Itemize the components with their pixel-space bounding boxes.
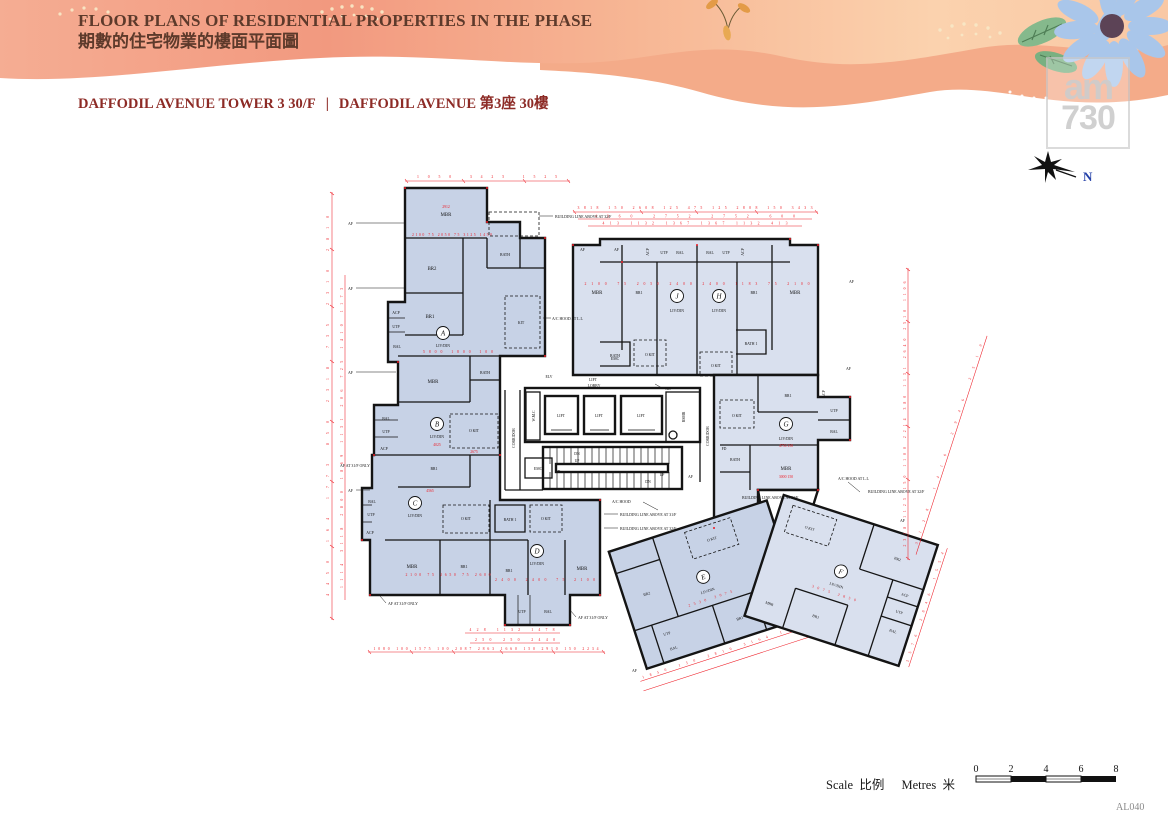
af-label-1: AF bbox=[348, 222, 354, 226]
room-label-okit: O KIT bbox=[711, 364, 722, 368]
af-label-7: AF bbox=[849, 280, 855, 284]
unit-letter-h: H bbox=[715, 293, 722, 301]
corridor-label-left: CORRIDOR bbox=[512, 428, 516, 448]
room-label-mbr: MBR bbox=[407, 565, 418, 570]
room-label-livdin: LIV/DIN bbox=[779, 437, 793, 441]
lift-label-1: LIFT bbox=[557, 414, 566, 418]
ann-af31-c: AF AT 31/F ONLY bbox=[388, 602, 418, 606]
ann-building-line-32-a: BUILDING LINE ABOVE AT 32/F bbox=[555, 215, 612, 219]
af-label-10: AF bbox=[900, 519, 906, 523]
up-label-2: UP bbox=[660, 473, 665, 477]
emc-label: EMC bbox=[534, 467, 543, 471]
subtitle-tower: DAFFODIL AVENUE TOWER 3 30/F bbox=[78, 96, 316, 112]
af-label-2: AF bbox=[348, 287, 354, 291]
dn-label-2: DN bbox=[645, 480, 651, 484]
scale-tick-6: 6 bbox=[1079, 764, 1084, 775]
dim-bottom-3: 1080 100 1575 100 2087 2863 1660 150 291… bbox=[374, 647, 599, 651]
room-label-br1: BR1 bbox=[636, 291, 643, 295]
metres-label-zh: 米 bbox=[942, 778, 955, 792]
ann-ac-hood-e: A/C HOOD bbox=[612, 500, 631, 504]
title-block: FLOOR PLANS OF RESIDENTIAL PROPERTIES IN… bbox=[78, 10, 592, 53]
room-label-livdin: LIV/DIN bbox=[408, 514, 422, 518]
dim-a-mbr: 2912 bbox=[442, 205, 450, 209]
room-label-bath: BATH bbox=[500, 253, 510, 257]
dim-bottom-2: 250 250 2440 bbox=[475, 638, 555, 642]
room-label-utp: UTP bbox=[382, 430, 389, 434]
af-label-4: AF bbox=[348, 489, 354, 493]
dim-a-beds: 2100 75 2050 75 3125 1450 bbox=[412, 233, 492, 237]
dim-right-1: 2318 1123 150 1100 2214 380 1131 2640 25… bbox=[903, 281, 907, 546]
room-label-livdin: LIV/DIN bbox=[712, 309, 726, 313]
wing-unit-f: O KIT BR2 F LIV/DIN 3075 2850 BR1 MBR AC… bbox=[745, 495, 948, 669]
room-label-kit: KIT bbox=[518, 321, 525, 325]
ann-af31-b: AF AT 31/F ONLY bbox=[340, 464, 370, 468]
scale-tick-2: 2 bbox=[1009, 764, 1014, 775]
lift-label-3: LIFT bbox=[637, 414, 646, 418]
scale-label-en: Scale bbox=[826, 778, 853, 792]
unit-letter-g: G bbox=[783, 421, 788, 429]
dim-jh-row1: 3818 150 2608 125 475 125 2808 150 3433 bbox=[578, 206, 813, 210]
metres-label-en: Metres bbox=[901, 778, 936, 792]
af-label-8: AF bbox=[846, 367, 852, 371]
scale-tick-4: 4 bbox=[1044, 764, 1049, 775]
room-label-bal: BAL bbox=[830, 430, 838, 434]
unit-letter-b: B bbox=[435, 421, 440, 429]
af-label-9: AF bbox=[688, 475, 694, 479]
north-star-icon bbox=[1028, 151, 1075, 183]
subtitle-zh: 第3座 30樓 bbox=[480, 96, 549, 112]
dim-g-mbr: 3000 150 bbox=[779, 475, 793, 479]
ann-building-line-32-f: BUILDING LINE ABOVE AT 32/F bbox=[868, 490, 925, 494]
room-label-acp: ACP bbox=[741, 248, 745, 255]
af-label-5: AF bbox=[580, 248, 586, 252]
room-label-livdin: LIV/DIN bbox=[670, 309, 684, 313]
dim-b-okit: 2675 bbox=[470, 450, 478, 454]
room-label-utp: UTP bbox=[830, 409, 837, 413]
corridor-label-right: CORRIDOR bbox=[706, 426, 710, 446]
dim-jh-row2: 4360 2752 2752 600 bbox=[595, 215, 795, 219]
unit-letter-c: C bbox=[413, 500, 418, 508]
af-label-6: AF bbox=[614, 248, 620, 252]
hr-label: HR bbox=[665, 387, 671, 391]
watermark-line2: 730 bbox=[1061, 103, 1115, 134]
lift-lobby-label-1: LIFT bbox=[589, 378, 598, 382]
dim-jh-beds: 2100 75 2050 2400 2400 1183 75 2100 bbox=[585, 282, 810, 286]
ann-ac-hood-a: A/C HOOD AT L.L bbox=[552, 317, 583, 321]
dim-top-a: 1050 3425 1525 bbox=[417, 175, 557, 179]
page-title-en: FLOOR PLANS OF RESIDENTIAL PROPERTIES IN… bbox=[78, 10, 592, 31]
dim-right-2: 3128 1410 2946 2510 bbox=[914, 344, 983, 545]
room-label-mbr: MBR bbox=[428, 380, 439, 385]
room-label-mbr: MBR bbox=[577, 567, 588, 572]
room-label-br1: BR1 bbox=[426, 315, 435, 320]
unit-letter-a: A bbox=[440, 330, 446, 338]
wmc-label: W.M.C bbox=[532, 410, 536, 422]
elv-label: ELV bbox=[545, 375, 552, 379]
dim-c-liv: 4565 bbox=[426, 489, 434, 493]
scale-tick-8: 8 bbox=[1114, 764, 1119, 775]
room-label-bal: BAL bbox=[544, 610, 552, 614]
ann-af31-d: AF AT 31/F ONLY bbox=[578, 616, 608, 620]
core-staircase bbox=[543, 447, 682, 489]
room-label-utp: UTP bbox=[660, 251, 667, 255]
ann-building-line-31-d: BUILDING LINE ABOVE AT 31/F bbox=[620, 513, 677, 517]
lift-lobby-label-2: LOBBY bbox=[588, 384, 601, 388]
ann-building-line-32-e: BUILDING LINE ABOVE AT 32/F bbox=[742, 496, 799, 500]
room-label-acp: ACP bbox=[392, 311, 399, 315]
room-label-bath: BATH bbox=[730, 458, 740, 462]
page-title-zh: 期數的住宅物業的樓面平面圖 bbox=[78, 31, 592, 53]
dim-bottom-1: 428 1132 1478 bbox=[470, 628, 555, 632]
dim-left-1: 4450 164 1773 850 2318 735 2310 2810 bbox=[326, 216, 330, 596]
rsmr-label: RSMR bbox=[682, 411, 686, 422]
room-label-mbr: MBR bbox=[441, 213, 452, 218]
room-label-okit: O KIT bbox=[469, 429, 480, 433]
subtitle-divider: | bbox=[326, 96, 329, 112]
room-label-br1: BR1 bbox=[751, 291, 758, 295]
room-label-mbr: MBR bbox=[781, 467, 792, 472]
room-label-bath: BATH bbox=[480, 371, 490, 375]
scale-label-zh: 比例 bbox=[859, 778, 884, 792]
room-label-mbr: MBR bbox=[592, 291, 603, 296]
room-label-okit: O KIT bbox=[732, 414, 743, 418]
dim-jh-row3: 413 1132 1367 1367 1132 413 bbox=[603, 222, 788, 226]
room-label-utp: UTP bbox=[367, 513, 374, 517]
room-label-livdin: LIV/DIN bbox=[436, 344, 450, 348]
subtitle: DAFFODIL AVENUE TOWER 3 30/F|DAFFODIL AV… bbox=[78, 92, 549, 113]
room-label-bath: BATH bbox=[610, 354, 620, 358]
am730-watermark: am 730 bbox=[1046, 57, 1130, 149]
room-label-mbr: MBR bbox=[790, 291, 801, 296]
room-label-br1: BR1 bbox=[431, 467, 438, 471]
scale-bar-text: Scale 比例 Metres 米 bbox=[826, 774, 969, 793]
room-label-br1: BR1 bbox=[785, 394, 792, 398]
floor-plan-page: FLOOR PLANS OF RESIDENTIAL PROPERTIES IN… bbox=[0, 0, 1168, 815]
room-label-br1: BR1 bbox=[506, 569, 513, 573]
af-label-3: AF bbox=[348, 371, 354, 375]
ann-ac-hood-f: A/C HOOD AT L.L bbox=[838, 477, 869, 481]
core-lift-lobby bbox=[525, 388, 700, 442]
floor-plan-drawing: O KIT BR2 E LIV/DIN 2530 3075 BR1 MBR UT… bbox=[298, 158, 988, 758]
lift-label-2: LIFT bbox=[595, 414, 604, 418]
unit-letter-d: D bbox=[533, 548, 539, 556]
room-label-bal: BAL bbox=[393, 345, 401, 349]
scale-bar: Scale 比例 Metres 米 0 2 4 6 8 bbox=[820, 762, 1150, 796]
room-label-acp: ACP bbox=[366, 531, 373, 535]
room-label-acp: ACP bbox=[380, 447, 387, 451]
subtitle-street: DAFFODIL AVENUE bbox=[339, 96, 476, 112]
room-label-bal: BAL bbox=[368, 500, 376, 504]
room-label-utp: UTP bbox=[722, 251, 729, 255]
room-label-bal: BAL bbox=[706, 251, 714, 255]
dn-label: DN bbox=[574, 452, 580, 456]
scale-tick-0: 0 bbox=[974, 764, 979, 775]
dim-left-2: 1114 3118 2800 1869 1131 206 725 1410 11… bbox=[340, 288, 344, 588]
room-label-bath1: BATH 1 bbox=[504, 518, 517, 522]
dim-b-liv: 4025 bbox=[433, 443, 441, 447]
room-label-br1: BR1 bbox=[461, 565, 468, 569]
fd-label: FD bbox=[722, 447, 727, 451]
room-label-okit: O KIT bbox=[541, 517, 552, 521]
north-label: N bbox=[1083, 169, 1093, 184]
room-label-acp: ACP bbox=[822, 390, 826, 397]
af-label-11: AF bbox=[632, 669, 638, 673]
room-label-bath1: BATH 1 bbox=[745, 342, 758, 346]
room-label-br2: BR2 bbox=[428, 267, 437, 272]
dim-g-liv: 4750 150 bbox=[779, 444, 793, 448]
ann-building-line-32-d: BUILDING LINE ABOVE AT 32/F bbox=[620, 527, 677, 531]
room-label-utp: UTP bbox=[392, 325, 399, 329]
room-label-acp: ACP bbox=[646, 248, 650, 255]
scale-bar-graphic: 0 2 4 6 8 bbox=[970, 762, 1130, 792]
room-label-livdin: LIV/DIN bbox=[530, 562, 544, 566]
room-label-okit: O KIT bbox=[645, 353, 656, 357]
page-code: AL040 bbox=[1116, 802, 1144, 813]
room-label-livdin: LIV/DIN bbox=[430, 435, 444, 439]
north-compass: N bbox=[1020, 148, 1168, 192]
room-label-bal: BAL bbox=[676, 251, 684, 255]
room-label-utp: UTP bbox=[518, 610, 525, 614]
room-label-bal: BAL bbox=[382, 417, 390, 421]
up-label: UP bbox=[575, 459, 580, 463]
room-label-okit: O KIT bbox=[461, 517, 472, 521]
pd-label: PD bbox=[556, 470, 561, 474]
